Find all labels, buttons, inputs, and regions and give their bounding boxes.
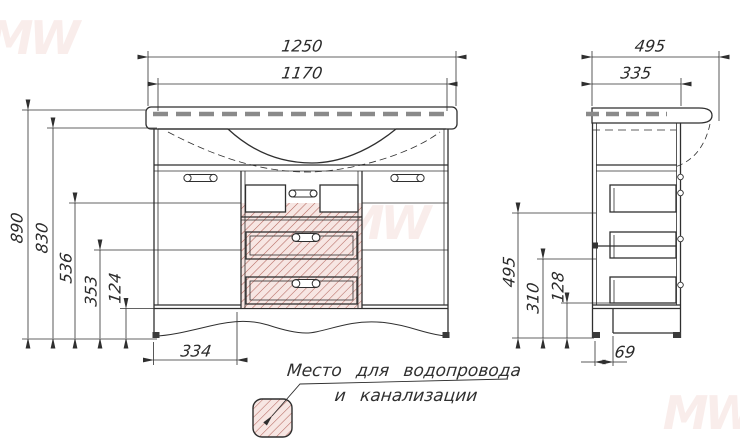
front-dimension-lines	[22, 51, 456, 365]
front-dim-zone-mid: 353	[82, 274, 101, 307]
side-view	[586, 108, 712, 338]
front-dim-zone-low: 124	[106, 271, 125, 304]
side-drawer-box-bottom	[610, 277, 676, 303]
front-dim-countertop-width: 1250	[280, 37, 323, 56]
front-dim-total-height: 890	[8, 211, 27, 244]
middle-drawer-handle-icon	[292, 234, 320, 242]
side-dim-cabinet-depth: 335	[619, 64, 652, 83]
front-dim-cabinet-width: 1170	[280, 64, 323, 83]
front-dim-zone-top: 536	[57, 251, 76, 284]
side-dim-drawer-top-level: 495	[500, 255, 519, 288]
side-drawer-box-top	[610, 185, 676, 212]
plumbing-zone-symbol	[253, 399, 292, 437]
legend-note-line2: и канализации	[334, 386, 479, 406]
side-dim-countertop-depth: 495	[633, 37, 666, 56]
front-dim-door-width: 334	[179, 342, 212, 361]
left-door-handle-icon	[184, 174, 217, 181]
technical-drawing-canvas: MW MW MW	[0, 0, 740, 442]
right-door-handle-icon	[391, 174, 424, 181]
front-dim-cabinet-height: 830	[33, 221, 52, 254]
top-drawer-handle-icon	[289, 190, 317, 197]
side-cabinet-body	[592, 123, 683, 338]
side-countertop	[586, 108, 712, 167]
side-dim-plinth-inset: 69	[613, 343, 636, 362]
bottom-drawer-handle-icon	[292, 280, 320, 288]
legend-note-line1: Место для водопровода	[286, 361, 522, 381]
side-drawer-box-middle	[610, 232, 676, 258]
side-dim-drawer-low-level: 128	[549, 270, 568, 303]
front-view	[146, 107, 457, 338]
front-countertop	[146, 107, 457, 129]
side-dim-drawer-mid-level: 310	[524, 281, 543, 314]
